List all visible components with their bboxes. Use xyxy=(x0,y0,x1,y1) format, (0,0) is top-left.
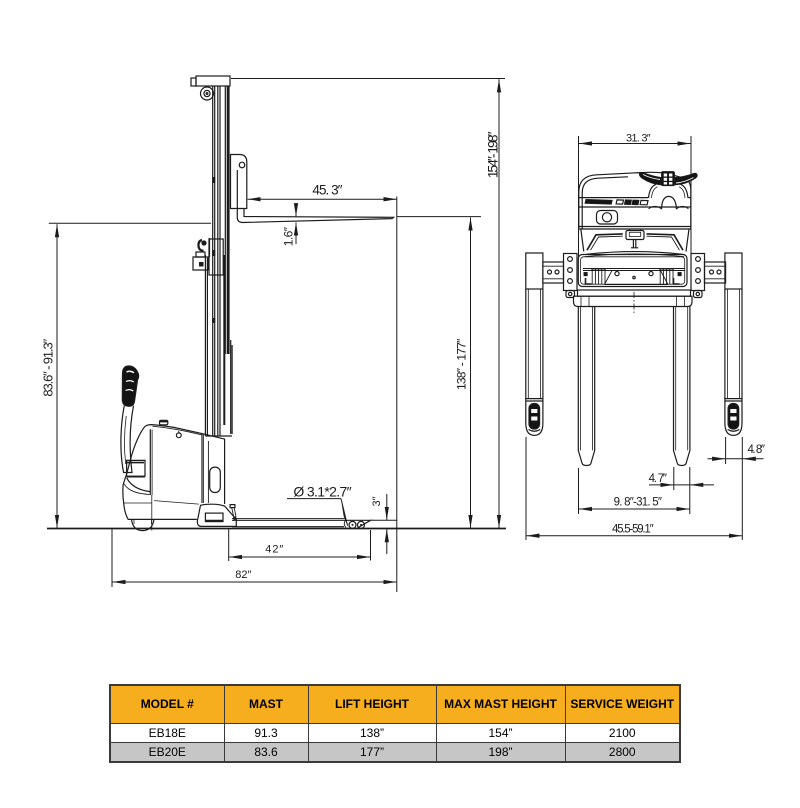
svg-text:45.5-59.1″: 45.5-59.1″ xyxy=(612,523,654,535)
svg-text:4. 7″: 4. 7″ xyxy=(649,473,667,485)
svg-text:1.6″: 1.6″ xyxy=(282,226,296,246)
svg-text:4. 8″: 4. 8″ xyxy=(747,444,765,456)
svg-text:42″: 42″ xyxy=(265,543,283,555)
svg-text:9. 8″-31. 5″: 9. 8″-31. 5″ xyxy=(614,497,662,509)
svg-text:138″ - 177″: 138″ - 177″ xyxy=(455,338,469,390)
svg-text:31. 3″: 31. 3″ xyxy=(626,133,651,145)
svg-text:83.6″ - 91.3″: 83.6″ - 91.3″ xyxy=(40,338,55,396)
svg-text:Ø 3.1*2.7″: Ø 3.1*2.7″ xyxy=(293,483,351,499)
svg-text:82″: 82″ xyxy=(235,569,251,581)
svg-text:3″: 3″ xyxy=(371,496,383,506)
svg-text:45. 3″: 45. 3″ xyxy=(312,183,342,198)
svg-text:154″- 198″: 154″- 198″ xyxy=(484,131,500,178)
